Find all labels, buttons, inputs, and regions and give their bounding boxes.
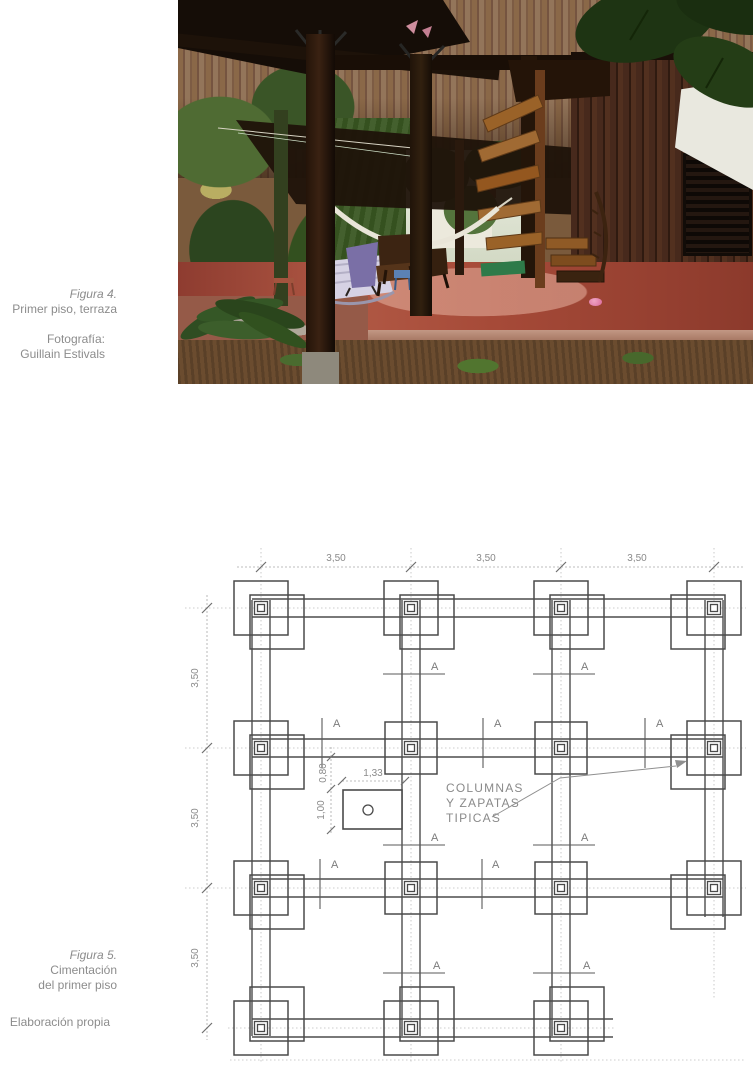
section-label: A bbox=[494, 718, 502, 730]
small-garden-stool bbox=[274, 278, 294, 295]
figure4-title: Figura 4. bbox=[0, 287, 117, 302]
typical-footing-detail bbox=[327, 747, 409, 835]
figure4-credit-name: Guillain Estivals bbox=[0, 347, 105, 362]
dimension-labels: 3,50 3,50 3,50 3,50 3,50 3,50 1,33 0,80 … bbox=[190, 553, 647, 968]
terrace-photo bbox=[178, 0, 753, 384]
section-label: A bbox=[333, 718, 341, 730]
document-page: { "figure4": { "title": "Figura 4.", "ca… bbox=[0, 0, 753, 1065]
section-label: A bbox=[431, 832, 439, 844]
dim-detail-height: 1,00 bbox=[316, 800, 327, 820]
figure5-caption-line1: Cimentación bbox=[0, 963, 117, 978]
dim-left-2: 3,50 bbox=[190, 808, 201, 828]
dim-top-1: 3,50 bbox=[326, 553, 346, 564]
figure5-title: Figura 5. bbox=[0, 948, 117, 963]
plan-annotation: COLUMNAS Y ZAPATAS TIPICAS bbox=[446, 781, 524, 825]
section-label: A bbox=[581, 832, 589, 844]
annotation-line2: Y ZAPATAS bbox=[446, 796, 520, 810]
figure4-caption-text: Primer piso, terraza bbox=[0, 302, 117, 317]
section-label: A bbox=[433, 960, 441, 972]
figure5-caption: Figura 5. Cimentación del primer piso bbox=[0, 948, 117, 993]
photo-foreground-column bbox=[306, 34, 335, 384]
figure5-credit: Elaboración propia bbox=[0, 1015, 110, 1030]
section-label: A bbox=[656, 718, 664, 730]
spiral-staircase bbox=[476, 60, 610, 288]
section-label: A bbox=[492, 859, 500, 871]
dim-detail-offset: 0,80 bbox=[318, 763, 329, 783]
photo-terrace-column bbox=[410, 54, 432, 316]
photo-column-plinth bbox=[302, 352, 339, 384]
pink-petals bbox=[406, 20, 432, 38]
section-label: A bbox=[581, 661, 589, 673]
dim-top-3: 3,50 bbox=[627, 553, 647, 564]
section-label: A bbox=[331, 859, 339, 871]
dim-detail-width: 1,33 bbox=[363, 768, 383, 779]
foreground-plant bbox=[178, 289, 311, 353]
figure4-credit: Fotografía: Guillain Estivals bbox=[0, 332, 105, 362]
annotation-line3: TIPICAS bbox=[446, 811, 501, 825]
figure5-caption-line2: del primer piso bbox=[0, 978, 117, 993]
blue-stool bbox=[394, 270, 411, 290]
figure5-credit-text: Elaboración propia bbox=[0, 1015, 110, 1030]
annotation-line1: COLUMNAS bbox=[446, 781, 524, 795]
photo-pink-dog-bowl bbox=[589, 298, 602, 306]
photo-detail-overlay bbox=[178, 0, 753, 384]
section-label: A bbox=[583, 960, 591, 972]
figure4-caption: Figura 4. Primer piso, terraza bbox=[0, 287, 117, 317]
figure4-credit-label: Fotografía: bbox=[0, 332, 105, 347]
dim-left-1: 3,50 bbox=[190, 668, 201, 688]
section-label: A bbox=[431, 661, 439, 673]
dim-top-2: 3,50 bbox=[476, 553, 496, 564]
dim-left-3: 3,50 bbox=[190, 948, 201, 968]
